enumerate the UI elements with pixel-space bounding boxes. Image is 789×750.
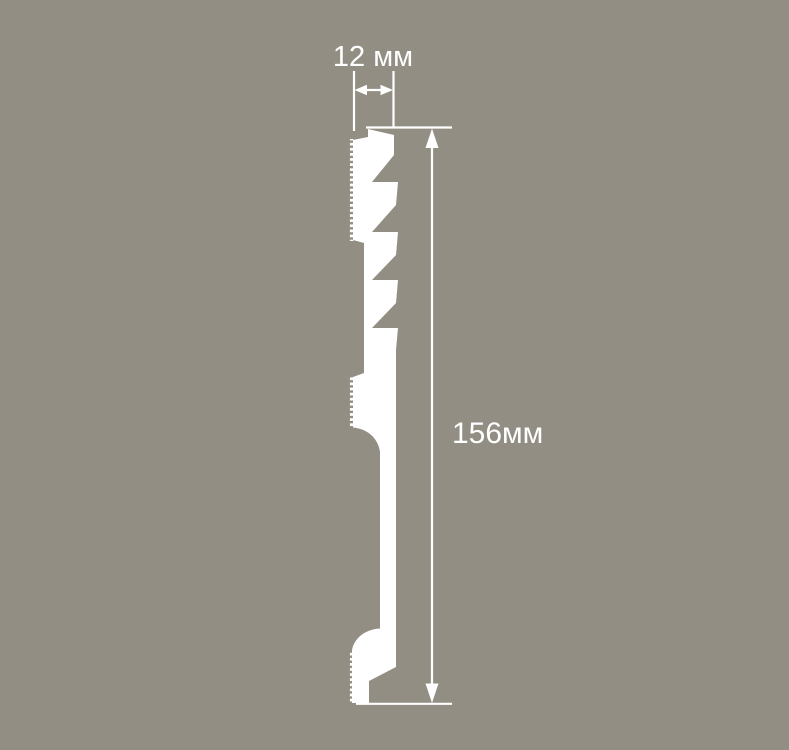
height-dimension-label: 156мм xyxy=(452,417,543,450)
serration-texture-bottom xyxy=(350,651,354,702)
profile-diagram: 12 мм 156мм xyxy=(0,0,789,750)
arrow-up-head-icon xyxy=(426,129,439,149)
width-dimension-label: 12 мм xyxy=(333,41,413,73)
arrow-right-head-icon xyxy=(381,85,394,95)
serration-texture-middle xyxy=(350,376,354,428)
arrow-down-head-icon xyxy=(426,684,439,704)
drawing-canvas: 12 мм 156мм xyxy=(0,0,789,750)
profile-shape xyxy=(352,129,398,703)
arrow-left-head-icon xyxy=(355,85,368,95)
serration-texture-top xyxy=(350,139,354,241)
width-dimension: 12 мм xyxy=(333,41,413,131)
